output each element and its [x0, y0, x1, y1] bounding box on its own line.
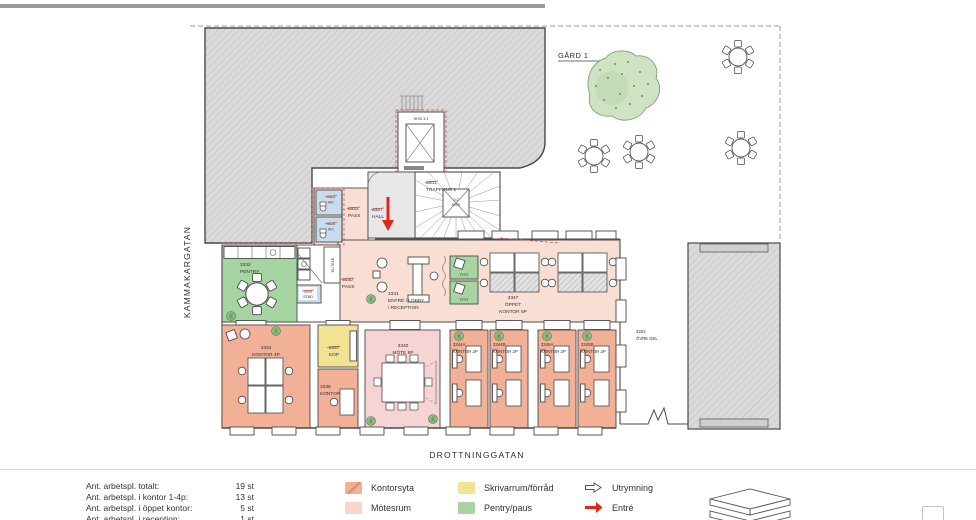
room-label: KONTOR 2P [453, 349, 478, 354]
round-table-icon [725, 132, 757, 165]
floor-plan-sheet: HISS 3:1 3:2 HISS 3301 TRAPPHUS 1 3 [0, 0, 976, 520]
swatch-kontorsyta [345, 482, 362, 494]
room-label: 3301 [426, 180, 437, 186]
reception-desk [408, 257, 429, 264]
plant-icon [429, 415, 438, 424]
room-label: KONTOR 2P [493, 349, 518, 354]
room-label: 3334 [261, 345, 272, 351]
plant-icon [583, 332, 592, 341]
room-label: 3337 [329, 345, 340, 351]
room-label: STÄD [303, 295, 313, 299]
round-table-icon [578, 140, 610, 173]
courtyard: GÅRD 1 [558, 41, 757, 173]
room-label: 3345B [581, 342, 594, 347]
floor-stack-icon [704, 487, 796, 520]
room-label: 3331 [388, 291, 399, 297]
room-label: TYST [459, 273, 469, 277]
swatch-skrivarrum [458, 482, 475, 494]
legend-label: Pentry/paus [484, 503, 532, 513]
stats-row: Ant. arbetspl. i öppet kontor: 5 st [86, 503, 254, 514]
plant-icon [272, 327, 281, 336]
stats-row: Ant. arbetspl. totalt: 19 st [86, 481, 254, 492]
room-label: WC [328, 201, 334, 205]
room-pentry: 3332 PENTRY [222, 245, 297, 322]
room-label: HALL [372, 214, 384, 220]
plant-icon [495, 332, 504, 341]
room-label: PASS [342, 284, 354, 290]
legend-label: Mötesrum [371, 503, 411, 513]
round-table-icon [623, 136, 655, 169]
room-label: 3345A [541, 342, 554, 347]
plant-icon [227, 312, 236, 321]
elevator-hiss: HISS 3:1 [396, 110, 446, 174]
room-kontor-3334: 3334 KONTOR 4P [222, 325, 310, 428]
plant-icon [543, 332, 552, 341]
room-label: TYST [459, 298, 469, 302]
round-table-icon [722, 41, 754, 74]
room-label: HISS [452, 203, 461, 207]
room-mote: 3340 MÖTE 8P [365, 330, 440, 428]
room-label: / RECEPTION [388, 305, 419, 311]
stats-value: 1 st [218, 514, 254, 520]
room-label: WC [328, 228, 334, 232]
legend-col-2: Skrivarrum/förråd Pentry/paus [458, 481, 554, 520]
room-label: 3322 [348, 206, 359, 212]
room-label: EL/TELE [331, 257, 335, 272]
plant-icon [367, 295, 376, 304]
room-label: 3330 [342, 277, 353, 283]
room-kontor-3345a: 3345A KONTOR 2P [538, 330, 576, 428]
plant-icon [455, 332, 464, 341]
legend-separator [0, 469, 976, 470]
room-label: TRAPPHUS 1 [426, 187, 456, 193]
swatch-motesrum [345, 502, 362, 514]
entre-arrow-icon [584, 502, 603, 513]
stats-value: 5 st [218, 503, 254, 514]
room-label: PASS [348, 213, 360, 219]
stats-label: Ant. arbetspl. i reception: [86, 514, 218, 520]
room-label: KOP [329, 352, 339, 358]
street-label-bottom: DROTTNINGGATAN [429, 450, 524, 460]
room-label: KONTOR 2P [581, 349, 606, 354]
utrymning-arrow-icon [584, 482, 603, 493]
room-wc-3326: 3326 WC [316, 217, 342, 242]
room-label: ENTRÉ / LOBBY [388, 297, 425, 304]
room-trapphus: 3:2 HISS 3301 TRAPPHUS 1 [415, 172, 500, 238]
plant-icon [367, 417, 376, 426]
stats-label: Ant. arbetspl. i öppet kontor: [86, 503, 218, 514]
room-label: HISS 3:1 [414, 117, 429, 121]
stats-label: Ant. arbetspl. i kontor 1-4p: [86, 492, 218, 503]
legend-item-motesrum: Mötesrum [345, 501, 414, 514]
legend-col-3: Utrymning Entré [584, 481, 653, 520]
stats-row: Ant. arbetspl. i reception: 1 st [86, 514, 254, 520]
room-kontor-3344a: 3344A KONTOR 2P [450, 330, 488, 428]
room-label: 3253 [636, 329, 646, 334]
floor-plan-drawing: HISS 3:1 3:2 HISS 3301 TRAPPHUS 1 3 [0, 0, 976, 520]
legend-label: Skrivarrum/förråd [484, 483, 554, 493]
legend-col-1: Kontorsyta Mötesrum [345, 481, 414, 520]
legend-item-utrymning: Utrymning [584, 481, 653, 494]
building-mass-right [688, 243, 780, 429]
legend-item-entre: Entré [584, 501, 653, 514]
swatch-pentry [458, 502, 475, 514]
legend-item-kontorsyta: Kontorsyta [345, 481, 414, 494]
room-label: KONTOR [320, 391, 341, 397]
stats-row: Ant. arbetspl. i kontor 1-4p: 13 st [86, 492, 254, 503]
legend-item-pentry: Pentry/paus [458, 501, 554, 514]
room-kontor-3344b: 3344B KONTOR 2P [490, 330, 528, 428]
room-label: 3338 [320, 384, 331, 390]
legend-item-skrivarrum: Skrivarrum/förråd [458, 481, 554, 494]
room-label: 3344B [493, 342, 506, 347]
room-label: 3344A [453, 342, 466, 347]
room-tyst-2: TYST [450, 281, 478, 304]
room-label: 3347 [508, 295, 519, 301]
workplace-stats: Ant. arbetspl. totalt: 19 st Ant. arbets… [86, 481, 254, 520]
courtyard-label: GÅRD 1 [558, 51, 588, 60]
room-label: 3332 [240, 262, 251, 268]
room-label: KONTOR 5P [499, 309, 527, 315]
room-wc-3323: 3323 WC [316, 190, 342, 215]
room-kop: 3337 KOP [318, 325, 358, 367]
room-label: KONTOR 4P [252, 352, 280, 358]
room-label: KONTOR 2P [541, 349, 566, 354]
room-label: 3340 [398, 343, 409, 349]
room-kitchen-core: EL/TELE 3328 STÄD [295, 245, 340, 322]
room-tyst-1: TYST [450, 256, 478, 279]
room-kontor-3345b: 3345B KONTOR 2P [578, 330, 616, 428]
partial-key-shape [922, 506, 944, 520]
legend-label: Entré [612, 503, 634, 513]
tree-icon [588, 51, 660, 120]
room-kontor-3338: 3338 KONTOR [318, 369, 358, 428]
room-label: 3327 [372, 207, 383, 213]
room-hall: 3327 HALL [368, 172, 415, 238]
room-label: ÖVRE DEL [636, 336, 658, 341]
stats-label: Ant. arbetspl. totalt: [86, 481, 218, 492]
room-label: 3:2 [453, 198, 458, 202]
sheet-top-bar [0, 4, 545, 8]
legend-label: Utrymning [612, 483, 653, 493]
room-label: ÖPPET [505, 301, 521, 308]
legend-label: Kontorsyta [371, 483, 414, 493]
street-label-left: KAMMAKARGATAN [182, 226, 192, 318]
stats-value: 13 st [218, 492, 254, 503]
stats-value: 19 st [218, 481, 254, 492]
